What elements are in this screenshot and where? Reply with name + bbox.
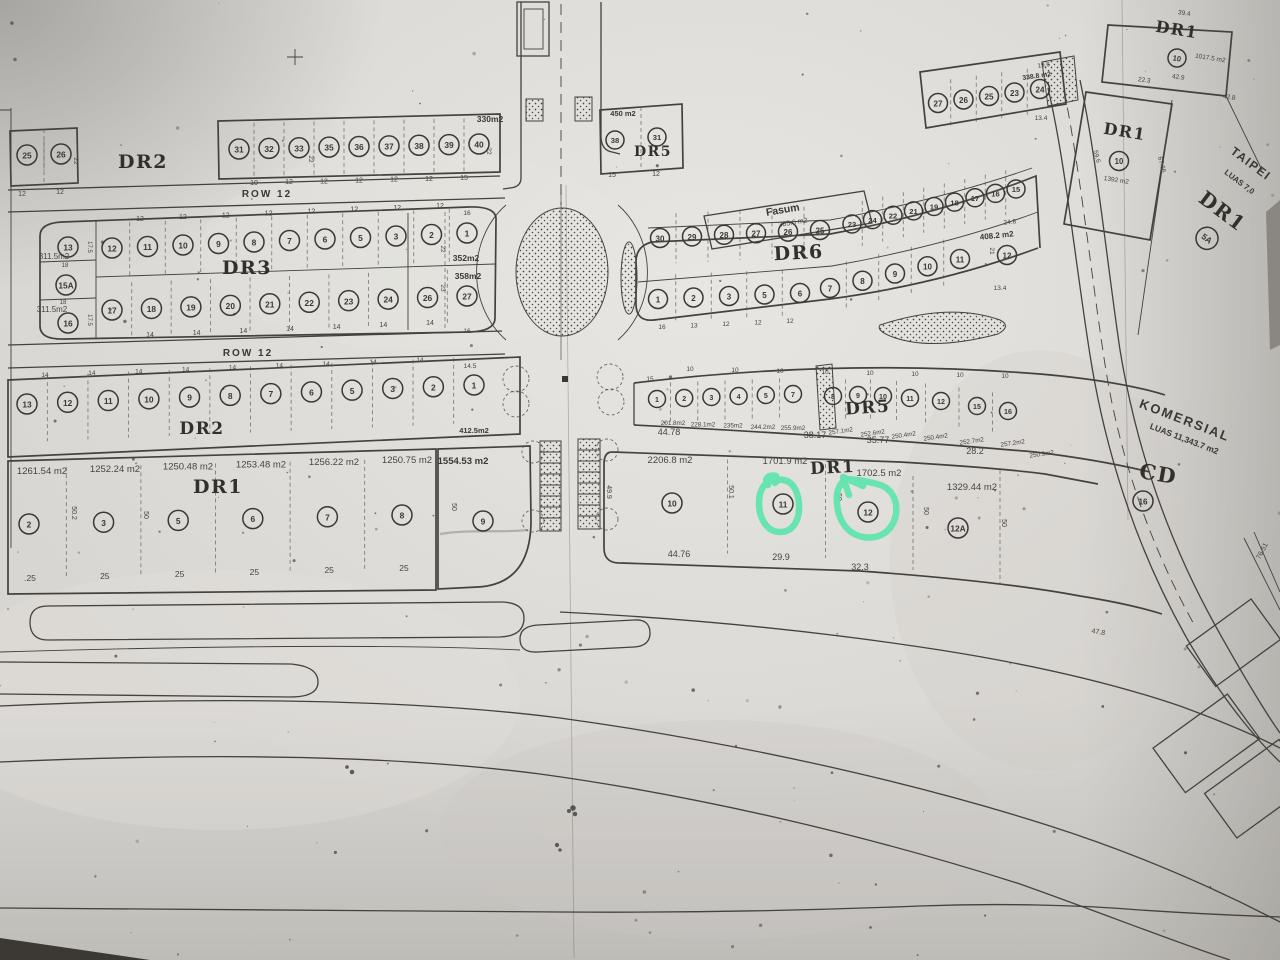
- speckle: [1023, 507, 1026, 510]
- dim-tick: 12: [179, 214, 187, 221]
- speckle: [1184, 647, 1187, 650]
- speckle: [850, 298, 852, 300]
- lot-number: 10: [667, 499, 677, 509]
- block-label-dr2-mid: DR2: [179, 419, 224, 439]
- lot-number: 19: [186, 302, 196, 312]
- dim-tick: 10: [911, 371, 919, 378]
- speckle: [17, 551, 19, 553]
- speckle: [158, 531, 160, 533]
- lot-number: 3: [390, 384, 395, 394]
- lot-number: 21: [909, 207, 918, 216]
- speckle: [1174, 171, 1176, 173]
- speckle: [289, 939, 291, 941]
- lot-number: 39: [444, 140, 454, 150]
- map-label: 1250.48 m2: [163, 462, 213, 473]
- lot-number: 7: [791, 391, 795, 399]
- speckle: [198, 271, 200, 273]
- dim-tick: 14: [276, 363, 284, 370]
- lot-number: 22: [889, 211, 897, 220]
- lot-number: 6: [798, 289, 803, 298]
- lot-number: 16: [1138, 497, 1148, 506]
- speckle: [994, 489, 996, 491]
- lot-number: 27: [462, 292, 472, 302]
- speckle: [471, 408, 473, 410]
- ink-blotch: [345, 765, 349, 769]
- lot-number: 17: [107, 306, 117, 316]
- lot-number: 3: [101, 518, 106, 528]
- speckle: [316, 842, 318, 844]
- lot-number: 15: [1012, 185, 1021, 194]
- speckle: [860, 30, 861, 31]
- map-label: 12: [18, 191, 26, 198]
- map-label: 15: [460, 175, 468, 182]
- speckle: [1017, 474, 1019, 476]
- lot-number: 7: [268, 389, 273, 399]
- lot-number: 23: [344, 296, 354, 306]
- speckle: [977, 497, 979, 499]
- map-label: 32.3: [851, 562, 869, 572]
- lot-number: 2: [682, 395, 686, 403]
- speckle: [866, 581, 869, 584]
- speckle: [321, 346, 323, 348]
- map-label: 12: [754, 320, 762, 327]
- dim-tick: 14: [370, 359, 378, 366]
- dim-tick: 12: [265, 210, 273, 217]
- lot-number: 8: [228, 391, 233, 401]
- dim-label: 23: [439, 284, 446, 292]
- lot-number: 27: [934, 99, 943, 108]
- speckle: [978, 517, 981, 520]
- map-label: 244.2m2: [751, 424, 776, 431]
- speckle: [109, 308, 111, 310]
- speckle: [0, 685, 1, 686]
- speckle: [719, 280, 721, 282]
- lot-number: 11: [104, 396, 113, 406]
- dim-label: 21: [988, 247, 995, 255]
- dim-tick: 14: [41, 372, 49, 379]
- dim-tick: 12: [350, 207, 358, 214]
- dim-label: 18: [60, 300, 67, 306]
- speckle: [984, 915, 986, 917]
- lot-number: 19: [930, 203, 938, 212]
- lot-number: 12: [937, 398, 945, 406]
- speckle: [1064, 463, 1065, 464]
- map-label: 255.9m2: [781, 425, 806, 432]
- map-label: 22: [72, 157, 79, 165]
- speckle: [78, 551, 81, 554]
- lot-number: 5: [176, 516, 181, 526]
- corner-splay-left: [526, 99, 543, 121]
- dim-label: 16: [463, 210, 471, 217]
- speckle: [557, 668, 560, 671]
- speckle: [944, 529, 946, 531]
- speckle: [975, 207, 976, 208]
- lot-number: 35: [324, 143, 334, 153]
- map-label: 29.9: [772, 552, 790, 562]
- speckle: [1009, 663, 1011, 665]
- speckle: [713, 789, 715, 791]
- map-label: 2206.8 m2: [648, 455, 693, 466]
- speckle: [218, 497, 219, 498]
- lot-number: 10: [923, 263, 932, 272]
- dim-tick: 15: [646, 376, 654, 383]
- lot-number: 40: [474, 140, 484, 150]
- speckle: [1178, 463, 1181, 466]
- lot-number: 28: [720, 231, 729, 240]
- speckle: [135, 462, 137, 464]
- block-label-dr5-mid: DR5: [844, 396, 890, 419]
- block-label-dr5-top: DR5: [634, 144, 672, 160]
- site-plan-map: 2526121231323335363738394010121212121215…: [0, 0, 1280, 960]
- ink-blotch: [567, 809, 571, 813]
- dim-tick: 14: [323, 361, 331, 368]
- speckle: [735, 745, 737, 747]
- lot-number: 6: [309, 388, 314, 398]
- lot-number: 29: [688, 233, 697, 242]
- lot-number: 7: [287, 236, 292, 246]
- map-label: 12: [285, 179, 293, 186]
- speckle: [923, 811, 924, 812]
- speckle: [886, 246, 888, 248]
- speckle: [793, 787, 794, 788]
- speckle: [433, 515, 435, 517]
- speckle: [829, 854, 833, 858]
- speckle: [394, 386, 397, 389]
- speckle: [177, 953, 179, 955]
- speckle: [869, 926, 872, 929]
- lot-number: 5: [358, 233, 363, 243]
- lot-number: 2: [691, 294, 696, 303]
- dim-tick: 10: [1001, 373, 1009, 380]
- map-label: 1253.48 m2: [236, 459, 286, 470]
- map-label: 15: [608, 172, 616, 179]
- speckle: [1070, 445, 1071, 446]
- lot-number: 12: [107, 244, 117, 254]
- dim-label: 24.8: [1003, 218, 1017, 226]
- speckle: [63, 385, 64, 386]
- lot-number: 6: [250, 514, 255, 524]
- speckle: [784, 589, 787, 592]
- map-label: 49.9: [605, 485, 612, 499]
- speckle: [1219, 147, 1220, 148]
- dim-tick: 14: [416, 357, 424, 364]
- speckle: [375, 528, 378, 531]
- speckle: [937, 765, 940, 768]
- speckle: [802, 74, 804, 76]
- map-label: 25: [100, 571, 110, 581]
- speckle: [251, 198, 253, 200]
- lot-number: 17: [971, 194, 979, 203]
- lot-number: 9: [481, 516, 486, 526]
- speckle: [214, 741, 216, 743]
- speckle: [308, 475, 311, 478]
- speckle: [729, 450, 731, 452]
- map-label: 25: [250, 567, 260, 577]
- speckle: [955, 496, 958, 499]
- map-label: 13: [690, 323, 698, 330]
- lot-number: 8: [252, 238, 257, 248]
- roundabout-island: [516, 208, 608, 336]
- lot-number: 25: [22, 151, 32, 161]
- map-label: 201.8m2: [661, 420, 686, 427]
- speckle: [691, 688, 695, 692]
- lot-number: 10: [1172, 53, 1182, 63]
- map-label: 50: [142, 511, 149, 519]
- speckle: [425, 829, 428, 832]
- speckle: [544, 19, 545, 20]
- speckle: [214, 722, 215, 723]
- speckle: [656, 164, 659, 167]
- speckle: [1141, 269, 1144, 272]
- corner-splay-right: [575, 97, 592, 121]
- speckle: [334, 851, 337, 854]
- block-label-dr2-top: DR2: [118, 151, 168, 173]
- speckle: [176, 126, 179, 129]
- row12-label-top: ROW 12: [242, 189, 292, 200]
- speckle: [516, 934, 518, 936]
- speckle: [985, 263, 987, 265]
- dim-tick: 10: [686, 366, 694, 373]
- speckle: [197, 278, 199, 280]
- speckle: [7, 608, 9, 610]
- row12-label-mid: ROW 12: [223, 348, 273, 359]
- lot-number: 8: [400, 511, 405, 521]
- lot-number: 31: [653, 133, 662, 142]
- lot-number: 16: [991, 190, 999, 199]
- lot-marker: 16: [1133, 491, 1153, 511]
- dim-label: 13.4: [1035, 115, 1048, 122]
- map-label: 22: [307, 155, 314, 163]
- speckle: [222, 388, 224, 390]
- speckle: [230, 240, 232, 242]
- lot-number: 33: [294, 143, 304, 153]
- lot-number: 12: [63, 398, 73, 408]
- speckle: [470, 344, 473, 347]
- lot-number: 3: [727, 292, 732, 301]
- area-label: 450 m2: [610, 109, 635, 118]
- lot-number: 23: [848, 220, 856, 229]
- lot-number: 2: [27, 520, 32, 530]
- speckle: [114, 655, 117, 658]
- speckle: [545, 682, 547, 684]
- label-row: 22: [72, 157, 79, 165]
- speckle: [406, 615, 408, 617]
- speckle: [836, 633, 838, 635]
- lot-number: 10: [1115, 157, 1124, 166]
- map-label: 12: [652, 171, 660, 178]
- lot-number: 11: [143, 242, 152, 252]
- speckle: [1016, 690, 1017, 691]
- lot-number: 38: [611, 136, 619, 145]
- speckle: [120, 144, 122, 146]
- speckle: [406, 249, 407, 250]
- dim-tick: 12: [308, 209, 316, 216]
- lot-number: 36: [354, 142, 364, 152]
- dim-tick: 12: [393, 205, 401, 212]
- dim-tick: 12: [222, 212, 230, 219]
- speckle: [375, 512, 377, 514]
- lot-number: 25: [985, 92, 994, 101]
- map-label: 12: [320, 178, 328, 185]
- lot-marker: 10: [1110, 152, 1129, 171]
- speckle: [976, 692, 979, 695]
- speckle: [1059, 38, 1060, 39]
- lot-number: 1: [465, 229, 470, 239]
- dim-label: 17.5: [86, 241, 92, 253]
- speckle: [579, 644, 582, 647]
- dim-label: 17.5: [86, 314, 92, 326]
- dim-label: 16: [463, 328, 471, 335]
- speckle: [794, 800, 795, 801]
- speckle: [132, 608, 133, 609]
- speckle: [1213, 793, 1215, 795]
- map-label: 44.76: [668, 549, 691, 559]
- map-label: 12: [722, 321, 730, 328]
- speckle: [1145, 70, 1147, 72]
- map-label: 235m2: [723, 423, 743, 430]
- lot-number: 7: [325, 512, 330, 522]
- map-label: 25: [399, 563, 409, 573]
- speckle: [643, 890, 646, 893]
- ink-blotch: [350, 770, 355, 775]
- map-label: 1261.54 m2: [17, 466, 67, 477]
- dim-tick: 10: [821, 369, 829, 376]
- dim-tick: 14: [333, 324, 341, 331]
- speckle: [287, 292, 289, 294]
- speckle: [863, 601, 864, 602]
- lot-number: 26: [56, 150, 66, 160]
- speckle: [1065, 35, 1066, 36]
- map-label: 28.2: [966, 446, 984, 456]
- map-label: 12: [425, 176, 433, 183]
- lot-number: 4: [737, 393, 741, 401]
- speckle: [123, 320, 126, 323]
- map-label: 12: [56, 189, 64, 196]
- speckle: [840, 155, 843, 158]
- lot-number: 23: [1010, 89, 1019, 98]
- map-label: 1256.22 m2: [309, 457, 359, 468]
- map-label: 10: [250, 180, 258, 187]
- speckle: [899, 660, 901, 662]
- speckle: [132, 458, 135, 461]
- lot-number: 24: [868, 216, 877, 225]
- lot-number: 16: [63, 319, 73, 329]
- map-label: 35.77: [867, 435, 890, 445]
- dim-tick: 14: [286, 326, 294, 333]
- map-label: 25: [324, 565, 334, 575]
- lot-number: 11: [779, 500, 788, 510]
- speckle: [806, 13, 809, 16]
- lot-number: 18: [950, 198, 958, 207]
- dim-tick: 12: [436, 203, 444, 210]
- lot-number: 25: [816, 226, 825, 235]
- dim-label: 22: [439, 245, 446, 253]
- speckle: [948, 163, 950, 165]
- speckle: [1271, 194, 1274, 197]
- lot-number: 5: [762, 291, 767, 300]
- speckle: [746, 699, 749, 702]
- lot-number: 15: [973, 403, 981, 411]
- lot-number: 1: [655, 396, 659, 404]
- site-plan-photo: 2526121231323335363738394010121212121215…: [0, 0, 1280, 960]
- lot-number: 26: [959, 96, 968, 105]
- speckle: [831, 771, 834, 774]
- lot-number: 9: [893, 270, 898, 279]
- speckle: [1163, 929, 1166, 932]
- lot-number: 2: [429, 230, 434, 240]
- dim-tick: 10: [731, 367, 739, 374]
- dim-tick: 10: [866, 370, 874, 377]
- lot-number: 31: [234, 145, 244, 155]
- map-label: 44.78: [658, 427, 681, 437]
- lot-number: 15A: [58, 281, 73, 291]
- lot-number: 27: [752, 230, 761, 239]
- lot-number: 37: [384, 141, 394, 151]
- speckle: [875, 883, 877, 885]
- dim-tick: 14: [146, 332, 154, 339]
- lot-number: 1: [656, 295, 661, 304]
- map-label: 50.1: [727, 485, 734, 499]
- speckle: [917, 954, 919, 956]
- speckle: [287, 472, 289, 474]
- lot-number: 22: [305, 298, 315, 308]
- speckle: [1253, 78, 1254, 79]
- speckle: [624, 680, 627, 683]
- speckle: [926, 526, 929, 529]
- lot-number: 21: [265, 299, 275, 309]
- speckle: [731, 945, 734, 948]
- lot-number: 16: [1004, 408, 1012, 416]
- lot-number: 11: [956, 255, 965, 264]
- dr6-west-island: [621, 242, 637, 314]
- speckle: [247, 826, 248, 827]
- ink-blotch: [555, 843, 559, 847]
- map-label: 25: [175, 569, 185, 579]
- speckle: [101, 241, 104, 244]
- map-label: 50: [922, 507, 929, 515]
- lot-number: 1: [472, 381, 477, 391]
- dim-tick: 14: [182, 366, 190, 373]
- lot-number: 9: [216, 239, 221, 249]
- speckle: [779, 821, 781, 823]
- survey-marker: [562, 376, 568, 382]
- map-label: 12: [355, 178, 363, 185]
- lot-number: 11: [906, 395, 914, 403]
- lot-number: 8: [831, 393, 835, 401]
- speckle: [130, 932, 131, 933]
- lot-number: 3: [709, 394, 713, 402]
- speckle: [282, 140, 284, 142]
- speckle: [910, 490, 913, 493]
- speckle: [866, 393, 868, 395]
- dim-tick: 14: [193, 330, 201, 337]
- dim-label: 50: [450, 503, 457, 511]
- dim-tick: 14: [239, 328, 247, 335]
- dim-tick: 14: [135, 368, 143, 375]
- lot-number: 2: [431, 382, 436, 392]
- lot-number: 13: [22, 400, 32, 410]
- lot-number: 24: [1036, 85, 1045, 94]
- lot-number: 5: [764, 392, 768, 400]
- lot-number: 26: [784, 228, 793, 237]
- dim-tick: 14: [88, 370, 96, 377]
- lot-number: 9: [187, 393, 192, 403]
- lot-number: 5: [350, 386, 355, 396]
- speckle: [1047, 4, 1049, 6]
- lot-number: 8: [860, 277, 865, 286]
- speckle: [1105, 611, 1108, 614]
- lot-number: 26: [423, 293, 433, 303]
